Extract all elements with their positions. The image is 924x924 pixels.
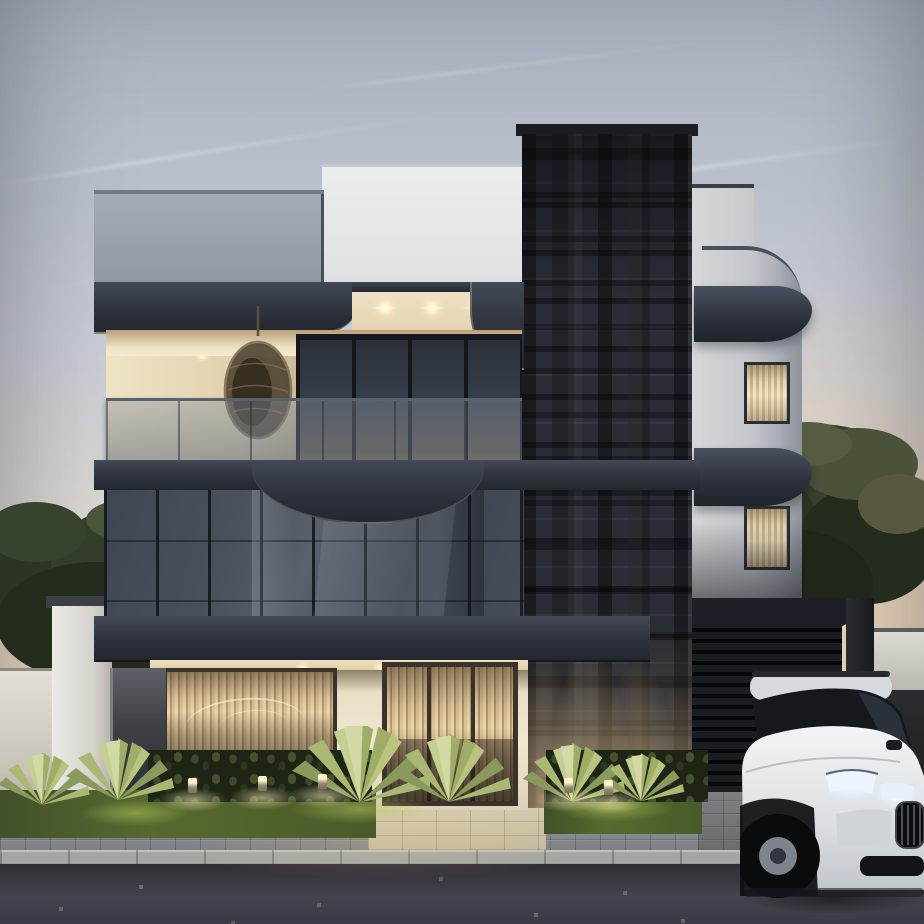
- left-gray-parapet: [94, 190, 324, 294]
- soffit-star-light: [417, 293, 447, 323]
- bollard-light: [318, 774, 327, 789]
- kidney-grille: [896, 802, 924, 848]
- right-wing-curved-band: [694, 286, 812, 342]
- bollard-light: [564, 778, 573, 793]
- scene-dusk-house: [0, 0, 924, 924]
- lower-intake: [860, 856, 924, 876]
- roof-rails: [752, 671, 890, 677]
- front-bumper: [836, 809, 892, 850]
- ground-floor-fascia: [94, 616, 650, 662]
- side-mirror: [886, 740, 902, 750]
- right-wing-curved-band: [694, 448, 812, 506]
- road-leaf-debris: [20, 886, 22, 888]
- bollard-light: [188, 778, 197, 793]
- bollard-light: [258, 776, 267, 791]
- right-wing-base-shadow: [688, 520, 804, 600]
- soffit-star-light: [370, 293, 400, 323]
- white-suv: [740, 644, 924, 920]
- agave-plant: [384, 732, 514, 804]
- curtained-window: [744, 362, 790, 424]
- bollard-light: [604, 780, 613, 795]
- terrace-glass-railing: [106, 398, 522, 469]
